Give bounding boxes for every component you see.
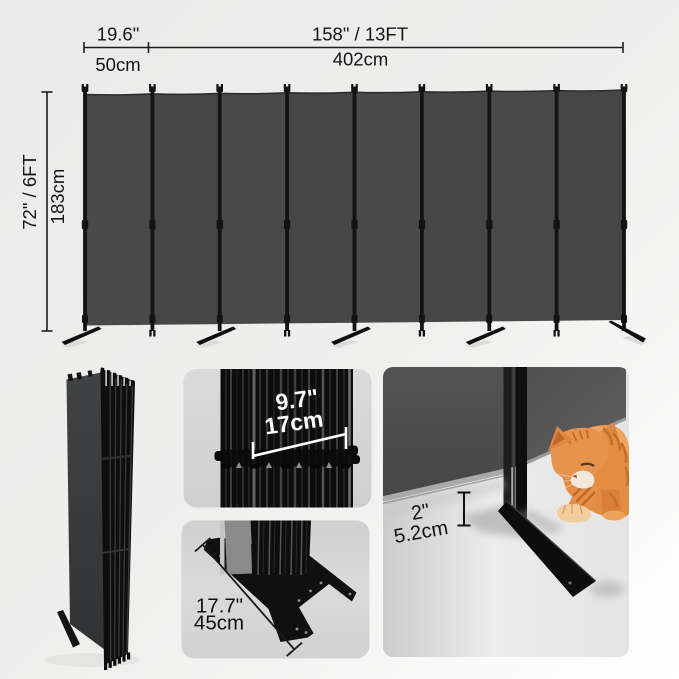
svg-text:158" / 13FT: 158" / 13FT xyxy=(312,24,408,45)
svg-text:50cm: 50cm xyxy=(95,54,140,75)
svg-text:72" / 6FT: 72" / 6FT xyxy=(19,154,40,229)
svg-text:45cm: 45cm xyxy=(194,612,244,635)
svg-text:19.6": 19.6" xyxy=(97,24,140,45)
svg-text:402cm: 402cm xyxy=(333,49,389,70)
svg-text:183cm: 183cm xyxy=(47,169,68,225)
